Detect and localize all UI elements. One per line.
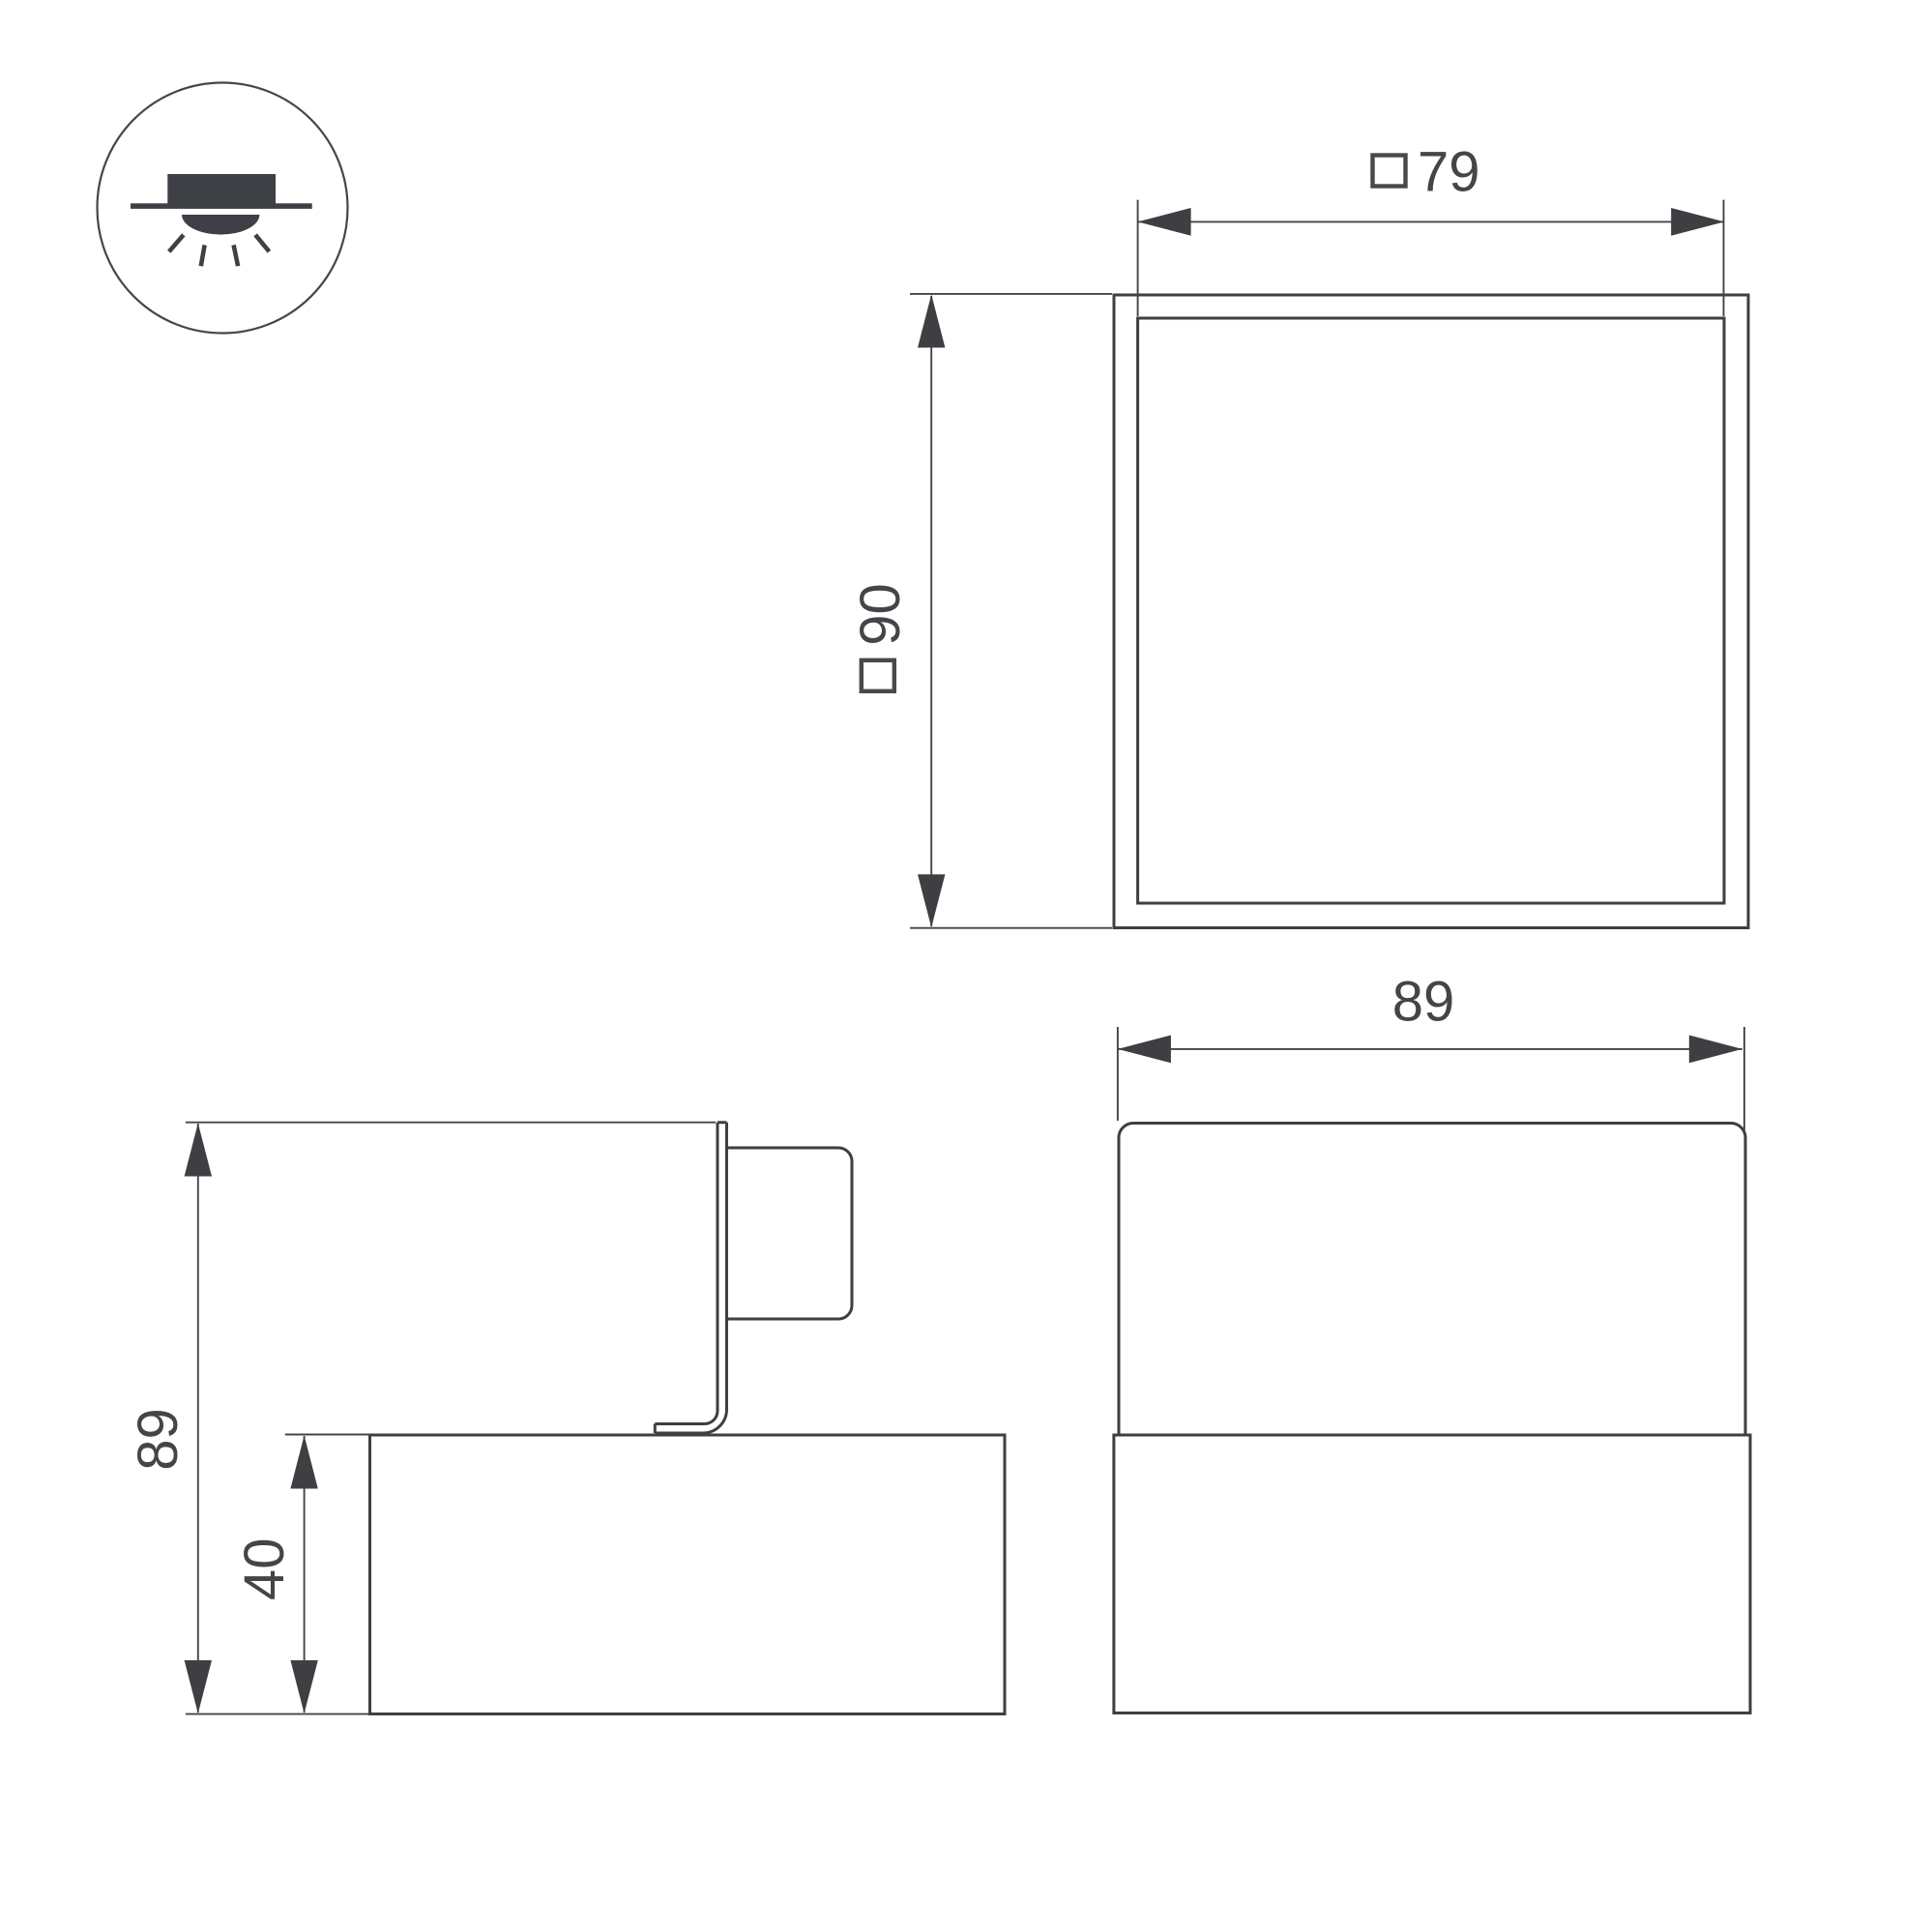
svg-text:89: 89 bbox=[127, 1408, 190, 1471]
svg-text:79: 79 bbox=[1418, 141, 1480, 204]
svg-text:89: 89 bbox=[1392, 971, 1455, 1034]
svg-text:40: 40 bbox=[233, 1538, 296, 1601]
svg-text:90: 90 bbox=[849, 583, 912, 646]
